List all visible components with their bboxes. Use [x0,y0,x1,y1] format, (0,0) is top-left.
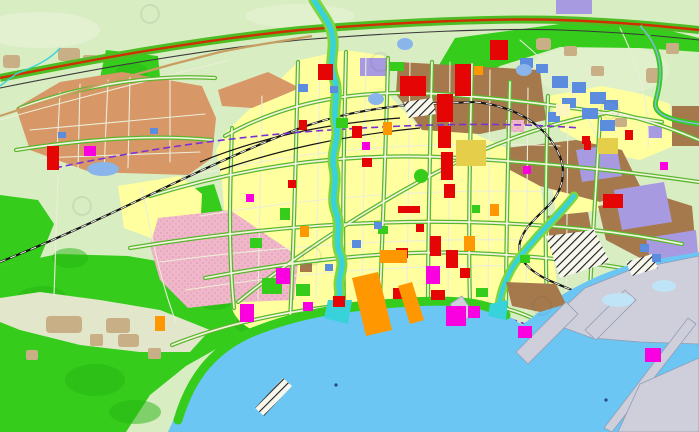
anchor-dot [334,383,337,386]
layer-pale-yellow-parcels [556,104,570,116]
anchor-dot [604,398,607,401]
planning-map-viewport[interactable] [0,0,699,432]
planning-map[interactable] [0,0,699,432]
